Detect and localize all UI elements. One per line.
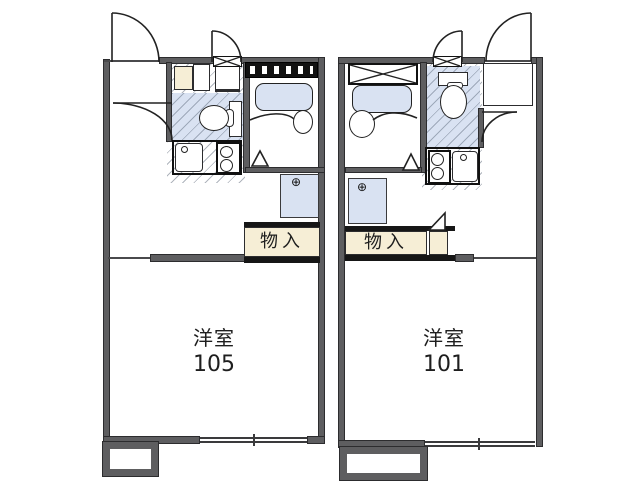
bathtub: [352, 85, 412, 113]
entrance-alcove: [340, 447, 427, 480]
bathroom-louver-window: [245, 62, 318, 78]
floorplan-canvas: ⊕ 物入 洋室 105: [0, 0, 640, 487]
room-opening-line: [108, 257, 150, 259]
room-number: 105: [174, 351, 254, 379]
room-label: 洋室 101: [404, 326, 484, 379]
sink-drain: [460, 154, 467, 161]
window-tick: [253, 434, 255, 446]
toilet-bowl: [199, 105, 229, 131]
wall: [166, 62, 172, 142]
wall: [150, 254, 245, 262]
interior-door-swing: [482, 112, 517, 142]
wall: [536, 57, 543, 447]
wall: [243, 62, 250, 173]
shoe-cabinet: [483, 63, 533, 106]
entrance-opening-line: [104, 60, 159, 62]
washing-machine-space: [348, 178, 387, 224]
room-name: 洋室: [404, 326, 484, 351]
washbasin: [293, 110, 313, 134]
toilet-bowl: [440, 85, 467, 119]
sliding-window: [425, 441, 535, 447]
wall: [103, 59, 110, 444]
storage-closet: 物入: [244, 227, 320, 257]
washbasin: [349, 110, 375, 138]
entrance-door-swing: [486, 13, 531, 61]
closet-bar: [244, 257, 320, 263]
storage-closet: 物入: [345, 231, 427, 255]
wall: [338, 57, 345, 448]
washstand: [215, 65, 240, 92]
faucet-icon: ⊕: [357, 181, 367, 193]
bathroom-crossed-window: [348, 63, 418, 85]
faucet-icon: ⊕: [291, 176, 301, 188]
entry-cabinet: [174, 66, 193, 90]
window-tick: [478, 438, 480, 450]
room-number: 101: [404, 351, 484, 379]
tub-edge-curve: [373, 113, 417, 120]
bath-corner-triangle: [252, 151, 268, 166]
room-name: 洋室: [174, 326, 254, 351]
small-crossed-window: [213, 56, 242, 67]
stove-burner: [220, 159, 233, 172]
entrance-opening-line: [485, 60, 531, 62]
wall: [345, 167, 422, 173]
washstand-cabinet: [193, 64, 210, 91]
wall: [245, 167, 325, 173]
small-crossed-window: [433, 56, 462, 67]
tub-edge-curve: [250, 114, 294, 120]
stove-burner: [431, 167, 444, 180]
sink-drain: [181, 146, 188, 153]
bathtub: [255, 83, 313, 111]
wall: [478, 108, 484, 148]
louver-dashes: [250, 66, 313, 74]
room-opening-line: [474, 257, 536, 259]
wall: [455, 254, 474, 262]
storage-label: 物入: [346, 232, 426, 253]
wall: [307, 436, 325, 444]
storage-label: 物入: [245, 228, 319, 255]
kitchen-sink: [175, 143, 203, 172]
closet-bar: [345, 255, 455, 261]
stove-burner: [431, 153, 444, 166]
stove-burner: [220, 146, 233, 158]
entrance-alcove: [103, 442, 158, 476]
room-label: 洋室 105: [174, 326, 254, 379]
interior-door-swing: [113, 103, 172, 140]
side-cabinet: [429, 231, 448, 255]
entrance-door-swing: [112, 13, 159, 62]
